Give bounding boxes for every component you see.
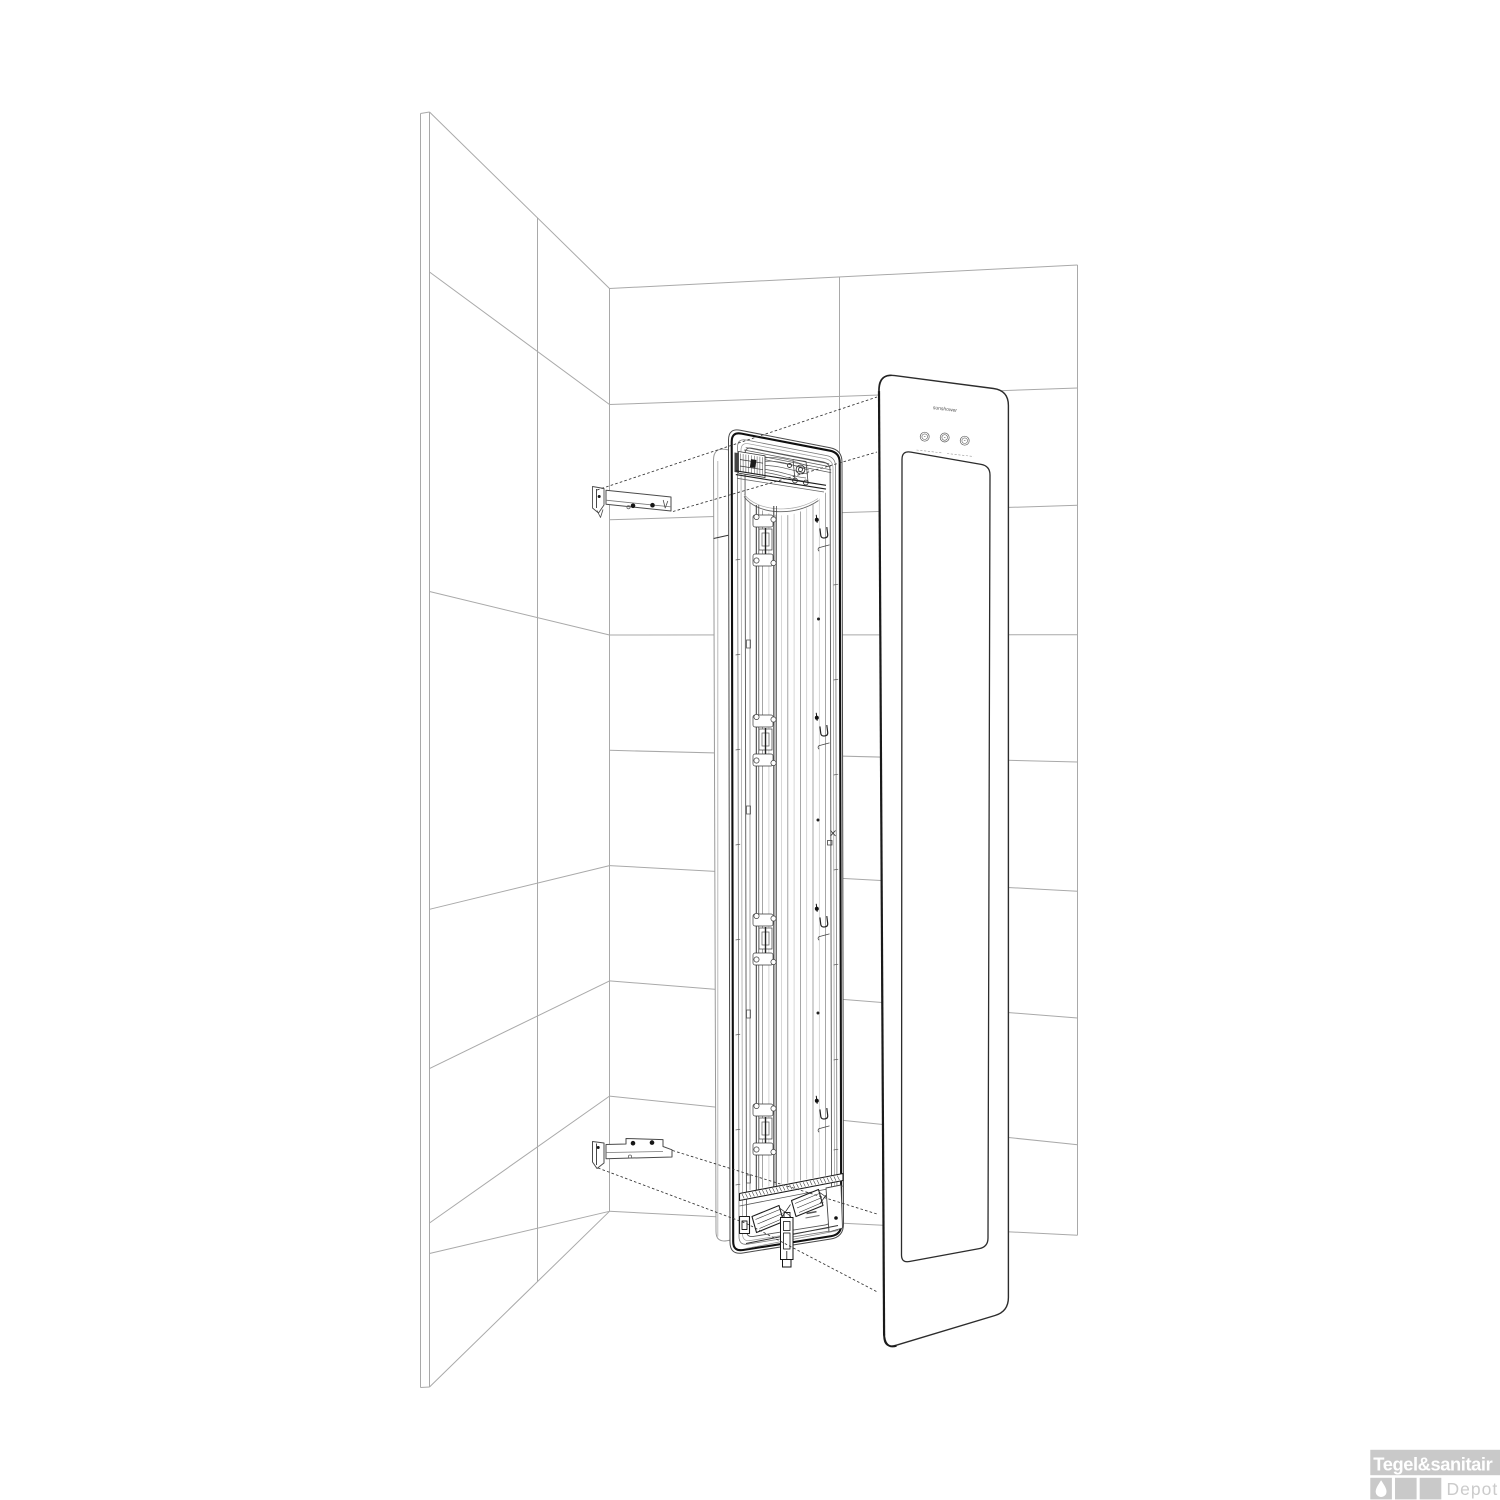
svg-text:Depot: Depot: [1447, 1479, 1499, 1499]
svg-text:Tegel&sanitair: Tegel&sanitair: [1373, 1453, 1492, 1474]
